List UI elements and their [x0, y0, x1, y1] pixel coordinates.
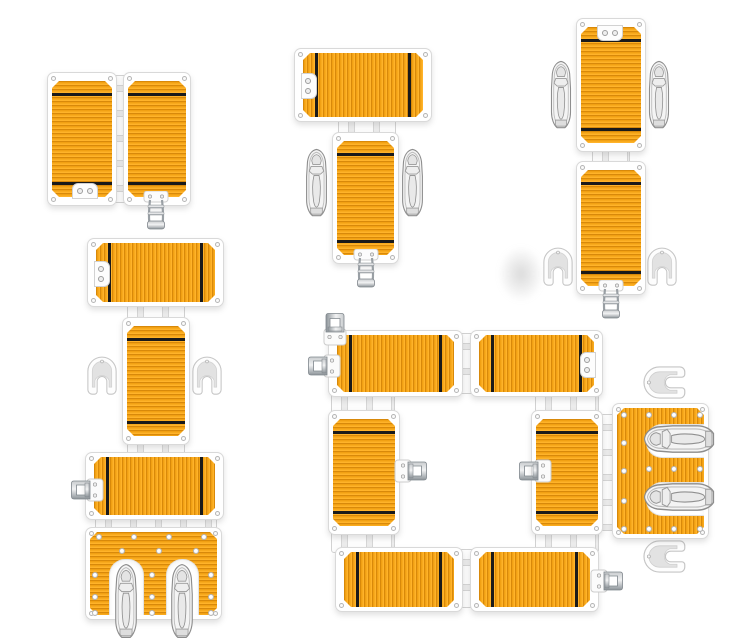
- corner-screw: [454, 334, 459, 339]
- jetski: [303, 148, 330, 218]
- product-image: [0, 0, 750, 642]
- mount-plate: [301, 73, 317, 99]
- corner-screw: [454, 603, 459, 608]
- corner-screw: [298, 113, 303, 118]
- latch-buckle: [322, 312, 348, 346]
- corner-screw: [51, 197, 56, 202]
- corner-screw: [391, 526, 396, 531]
- config-two-wide: [47, 72, 192, 237]
- jetski: [112, 563, 140, 640]
- corner-screw: [215, 456, 220, 461]
- corner-screw: [594, 388, 599, 393]
- deck-surface: [344, 552, 454, 607]
- corner-screw: [616, 530, 621, 535]
- corner-screw: [594, 526, 599, 531]
- corner-screw: [181, 321, 186, 326]
- deck-surface: [52, 81, 112, 197]
- corner-screw: [423, 113, 428, 118]
- corner-screw: [336, 136, 341, 141]
- corner-screw: [594, 334, 599, 339]
- corner-screw: [108, 76, 113, 81]
- dock-panel: [332, 132, 399, 264]
- dock-panel: [576, 161, 646, 295]
- corner-screw: [91, 242, 96, 247]
- corner-screw: [108, 197, 113, 202]
- corner-screw: [590, 551, 595, 556]
- corner-screw: [339, 551, 344, 556]
- corner-screw: [535, 414, 540, 419]
- corner-screw: [339, 603, 344, 608]
- dock-panel: [328, 330, 463, 397]
- corner-screw: [580, 22, 585, 27]
- deck-surface: [337, 335, 454, 392]
- deck-surface: [337, 141, 394, 255]
- corner-screw: [215, 511, 220, 516]
- corner-screw: [391, 414, 396, 419]
- config-square-ring: [306, 330, 726, 620]
- corner-screw: [637, 143, 642, 148]
- config-chain-ramp: [70, 238, 232, 642]
- corner-screw: [535, 526, 540, 531]
- config-two-long: [545, 18, 680, 318]
- jetski: [548, 60, 574, 130]
- corner-screw: [580, 165, 585, 170]
- deck-surface: [333, 419, 395, 526]
- ladder-latch: [597, 280, 625, 320]
- corner-screw: [89, 531, 94, 536]
- corner-screw: [474, 551, 479, 556]
- dock-panel: [470, 547, 599, 612]
- deck-surface: [581, 27, 641, 143]
- mount-plate: [597, 25, 623, 41]
- dock-panel: [47, 72, 117, 206]
- corner-screw: [454, 388, 459, 393]
- dock-panel: [87, 238, 224, 307]
- corner-screw: [390, 255, 395, 260]
- dock-panel: [122, 317, 190, 445]
- corner-screw: [182, 197, 187, 202]
- corner-screw: [213, 531, 218, 536]
- deck-surface: [94, 457, 215, 515]
- corner-screw: [91, 298, 96, 303]
- mooring-hook: [87, 348, 117, 398]
- corner-screw: [215, 298, 220, 303]
- jetski: [643, 479, 716, 515]
- latch-buckle: [70, 477, 104, 503]
- deck-surface: [479, 552, 590, 607]
- corner-screw: [423, 52, 428, 57]
- latch-buckle: [307, 353, 341, 379]
- deck-surface: [303, 53, 423, 117]
- jetski: [168, 563, 196, 640]
- corner-screw: [332, 388, 337, 393]
- corner-screw: [336, 255, 341, 260]
- corner-screw: [454, 551, 459, 556]
- mooring-hook: [647, 238, 677, 290]
- corner-screw: [215, 242, 220, 247]
- soft-shadow: [498, 246, 544, 302]
- corner-screw: [332, 414, 337, 419]
- dock-panel: [85, 452, 224, 520]
- dock-panel: [335, 547, 463, 612]
- deck-surface: [128, 81, 186, 197]
- config-t-shape: [294, 48, 434, 298]
- jetski-ramp-platform: [85, 527, 222, 620]
- jetski: [646, 60, 672, 130]
- dock-panel: [576, 18, 646, 152]
- mooring-hook: [633, 366, 688, 399]
- corner-screw: [390, 136, 395, 141]
- corner-screw: [616, 407, 621, 412]
- corner-screw: [51, 76, 56, 81]
- dock-panel: [328, 410, 400, 535]
- corner-screw: [580, 286, 585, 291]
- corner-screw: [89, 456, 94, 461]
- dock-panel: [123, 72, 191, 206]
- corner-screw: [126, 321, 131, 326]
- latch-buckle: [518, 458, 552, 484]
- mooring-hook: [633, 540, 688, 573]
- latch-buckle: [590, 568, 624, 594]
- corner-screw: [590, 603, 595, 608]
- mount-plate: [72, 183, 98, 199]
- ladder-latch: [142, 191, 170, 231]
- corner-screw: [594, 414, 599, 419]
- deck-surface: [581, 170, 641, 286]
- mount-plate: [94, 261, 110, 287]
- dock-panel: [531, 410, 603, 535]
- corner-screw: [637, 286, 642, 291]
- corner-screw: [637, 22, 642, 27]
- corner-screw: [580, 143, 585, 148]
- mooring-hook: [543, 238, 573, 290]
- dock-panel: [294, 48, 432, 122]
- latch-buckle: [394, 458, 428, 484]
- corner-screw: [474, 334, 479, 339]
- corner-screw: [181, 436, 186, 441]
- corner-screw: [126, 436, 131, 441]
- corner-screw: [474, 603, 479, 608]
- deck-surface: [479, 335, 594, 392]
- corner-screw: [182, 76, 187, 81]
- dock-panel: [470, 330, 603, 397]
- corner-screw: [127, 76, 132, 81]
- deck-surface: [127, 326, 185, 436]
- corner-screw: [127, 197, 132, 202]
- mooring-hook: [192, 348, 222, 398]
- deck-surface: [96, 243, 215, 302]
- mount-plate: [580, 352, 596, 378]
- corner-screw: [332, 526, 337, 531]
- jetski: [643, 421, 716, 457]
- jetski: [399, 148, 426, 218]
- corner-screw: [474, 388, 479, 393]
- corner-screw: [298, 52, 303, 57]
- ladder-latch: [352, 249, 380, 289]
- corner-screw: [89, 511, 94, 516]
- corner-screw: [637, 165, 642, 170]
